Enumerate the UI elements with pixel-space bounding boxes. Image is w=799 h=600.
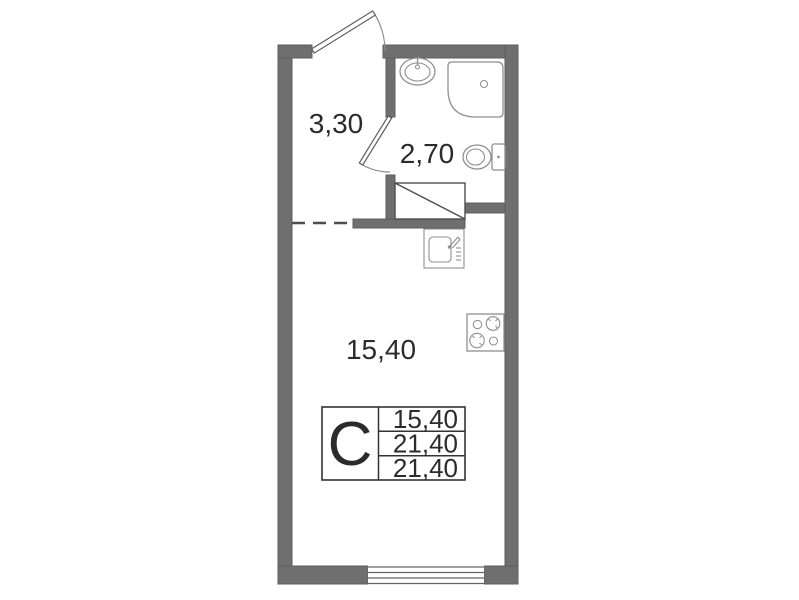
kitchen-faucet-tip [458, 237, 460, 240]
stove-burner-small [473, 320, 481, 328]
stove-burner-small [490, 337, 498, 345]
stove-burner-large [486, 317, 500, 331]
window-icon [368, 565, 484, 585]
toilet-bowl-inner [467, 149, 485, 165]
stove-burner-notch [480, 336, 482, 338]
living-room-area-label: 15,40 [346, 334, 416, 365]
wardrobe-diagonal [395, 183, 465, 219]
info-table-area-row: 21,40 [393, 453, 458, 483]
toilet-flush-button [497, 156, 500, 159]
shower-tray [448, 62, 503, 117]
unit-type-letter: С [328, 410, 373, 479]
shower-drain [481, 81, 488, 88]
bathroom-door-leaf [359, 116, 391, 165]
bath-sink-inner [405, 63, 430, 81]
stove-burner-notch [480, 343, 482, 345]
floor-plan-canvas: 3,30 2,70 15,40 С 15,40 21,40 21,40 [0, 0, 799, 600]
bathroom-door-swing-arc [361, 164, 390, 172]
bath-sink-tap-head [416, 65, 420, 69]
bathroom-area-label: 2,70 [400, 138, 455, 169]
window-opening [368, 565, 484, 585]
bathroom-door-icon [359, 116, 391, 172]
stove-burner-notch [496, 319, 498, 321]
kitchen-faucet-spout [453, 240, 461, 249]
wall-bottom-left-segment [278, 566, 368, 584]
info-table: С 15,40 21,40 21,40 [322, 404, 465, 483]
stove-burner-large [470, 333, 484, 347]
stove-burner-notch [489, 319, 491, 321]
wall-bottom-right-segment [484, 566, 518, 584]
bath-sink-icon [400, 58, 435, 85]
wall-top-left-segment [278, 45, 312, 58]
stove-burner-notch [473, 336, 475, 338]
wall-bathroom-bottom-stub [465, 203, 505, 213]
wall-left [278, 45, 292, 584]
entrance-door-icon [312, 11, 385, 53]
hallway-area-label: 3,30 [309, 108, 364, 139]
kitchen-sink-icon [424, 229, 464, 268]
wardrobe-icon [395, 183, 465, 219]
stove-burner-notch [496, 326, 498, 328]
wall-kitchen [353, 219, 465, 228]
floor-plan-page: 3,30 2,70 15,40 С 15,40 21,40 21,40 [0, 0, 799, 600]
wall-right [505, 45, 518, 584]
entrance-door-leaf [312, 11, 376, 53]
kitchen-sink-basin [429, 237, 451, 262]
wall-bathroom-upper [386, 58, 395, 117]
shower-icon [448, 62, 503, 117]
stove-icon [467, 314, 504, 351]
toilet-icon [463, 144, 505, 170]
wall-top-right-segment [383, 45, 518, 58]
